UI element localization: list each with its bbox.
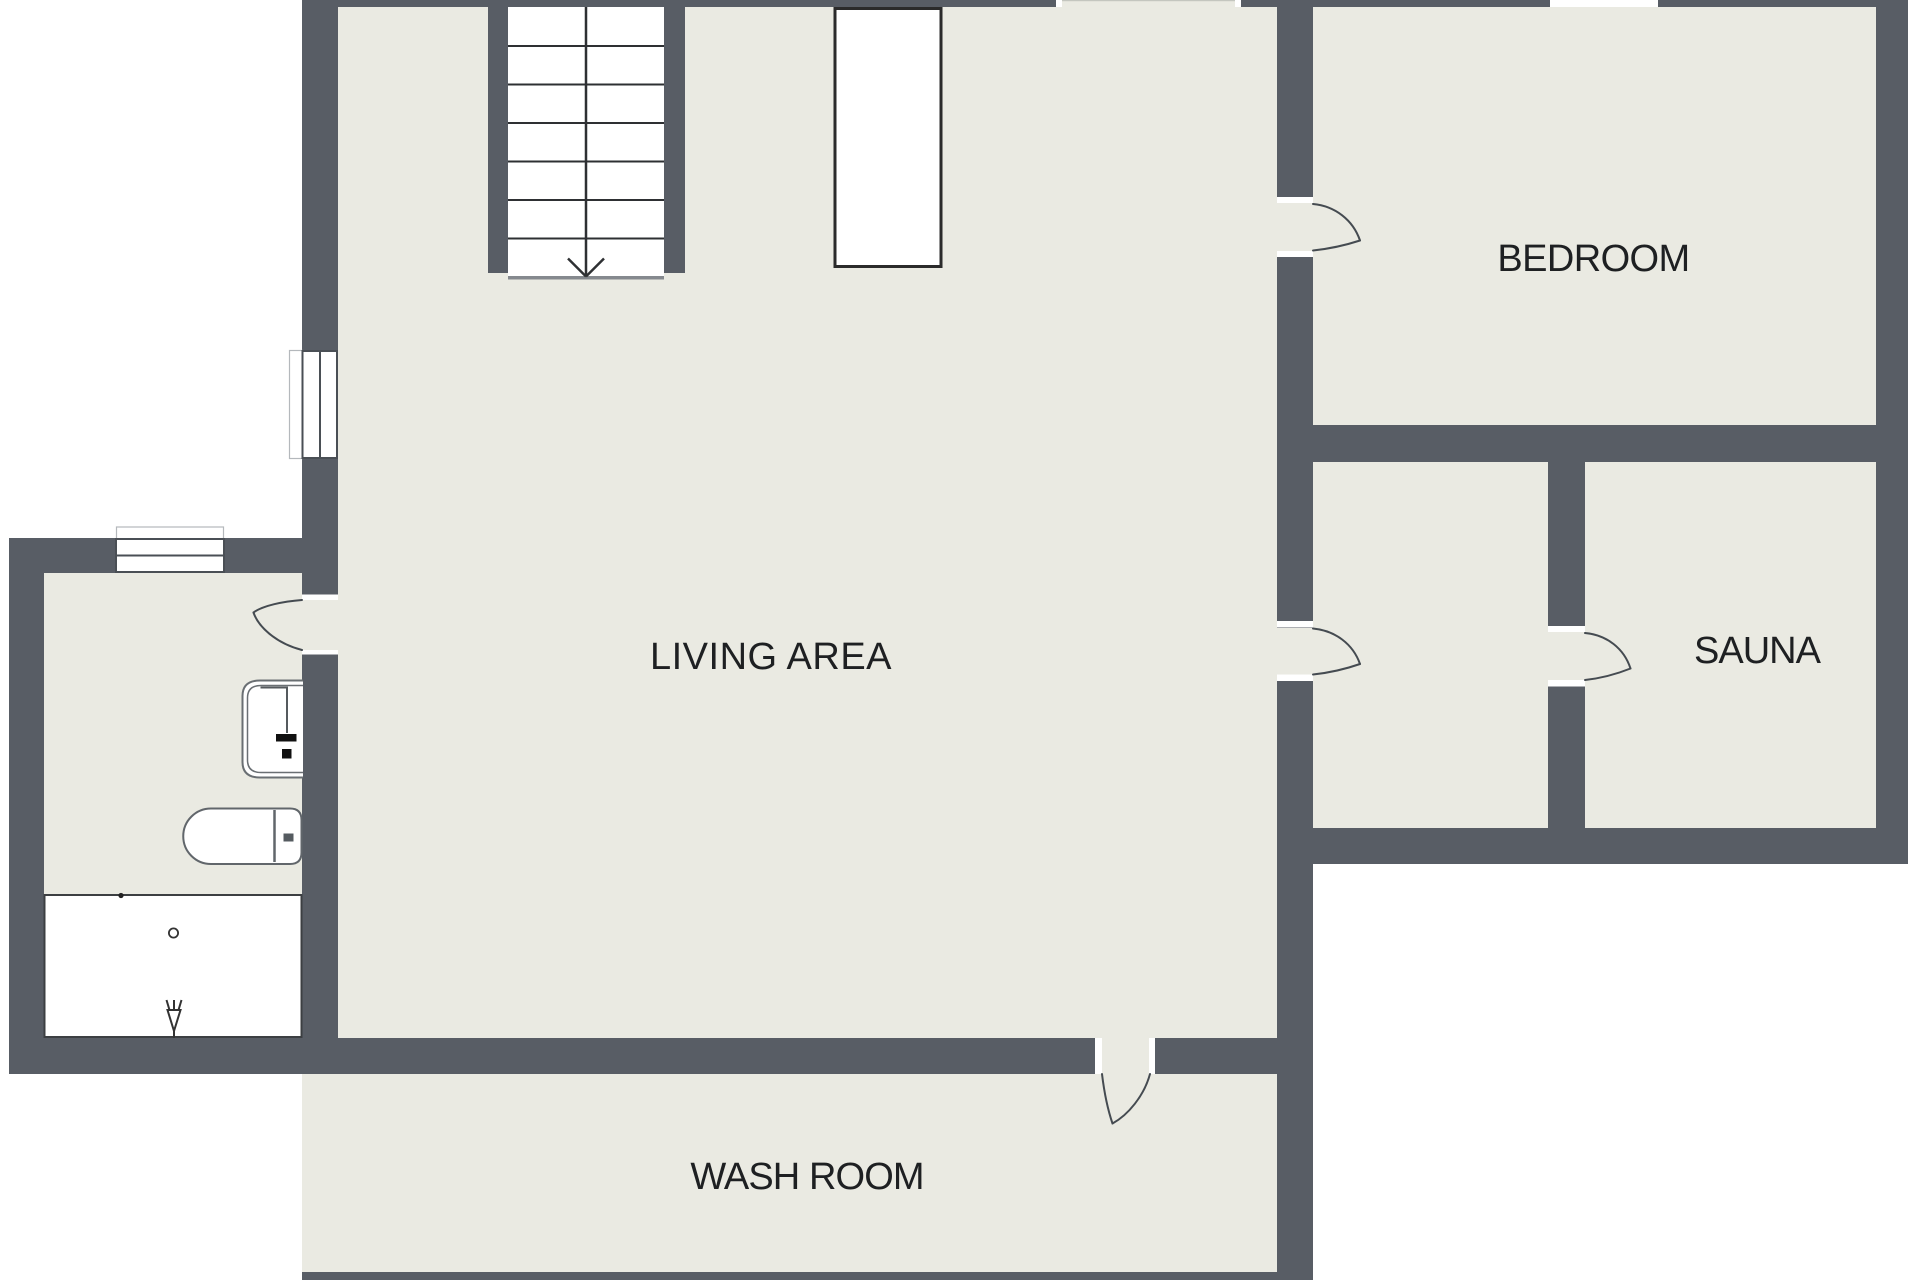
svg-text:SAUNA: SAUNA [1694, 630, 1822, 672]
svg-text:LIVING AREA: LIVING AREA [650, 636, 892, 678]
svg-text:WASH ROOM: WASH ROOM [690, 1156, 923, 1198]
svg-text:BEDROOM: BEDROOM [1497, 238, 1689, 280]
